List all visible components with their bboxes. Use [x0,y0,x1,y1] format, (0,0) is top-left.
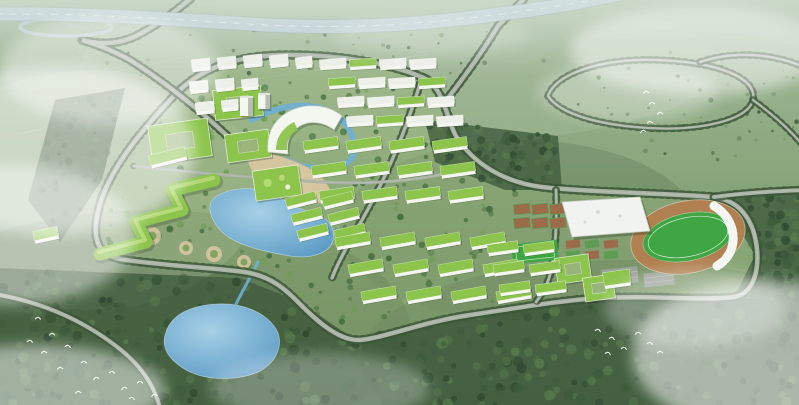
basketball-court [585,239,600,248]
tennis-court [514,217,531,229]
dormitory-building [397,96,426,109]
basketball-court [604,239,619,248]
horizon-haze [0,0,799,78]
aerial-rendering-canvas [0,0,799,405]
dormitory-building [358,77,387,90]
tennis-court [550,217,567,229]
tennis-court [514,203,531,215]
fog-patch [605,268,785,348]
building-white-slab [215,78,236,93]
building-white-slab [241,78,260,92]
dormitory-building [418,77,447,90]
tennis-court [532,217,549,229]
tennis-court [532,203,549,215]
aerial-campus-rendering [0,0,799,405]
building-tower [240,96,254,118]
dormitory-building [346,115,375,128]
dormitory-building [388,77,417,90]
basketball-court [604,250,619,259]
dormitory-building [436,115,465,128]
dormitory-building [367,96,396,109]
dormitory-building [427,96,456,109]
building-white-slab [195,101,216,116]
building-courtyard [224,129,273,165]
dormitory-building [337,96,366,109]
building-white-slab [221,99,240,113]
basketball-court [566,239,581,248]
dormitory-building [376,115,405,128]
dormitory-building [328,77,357,90]
building-tower [258,93,271,111]
dormitory-building [406,115,435,128]
gymnasium [562,197,653,240]
